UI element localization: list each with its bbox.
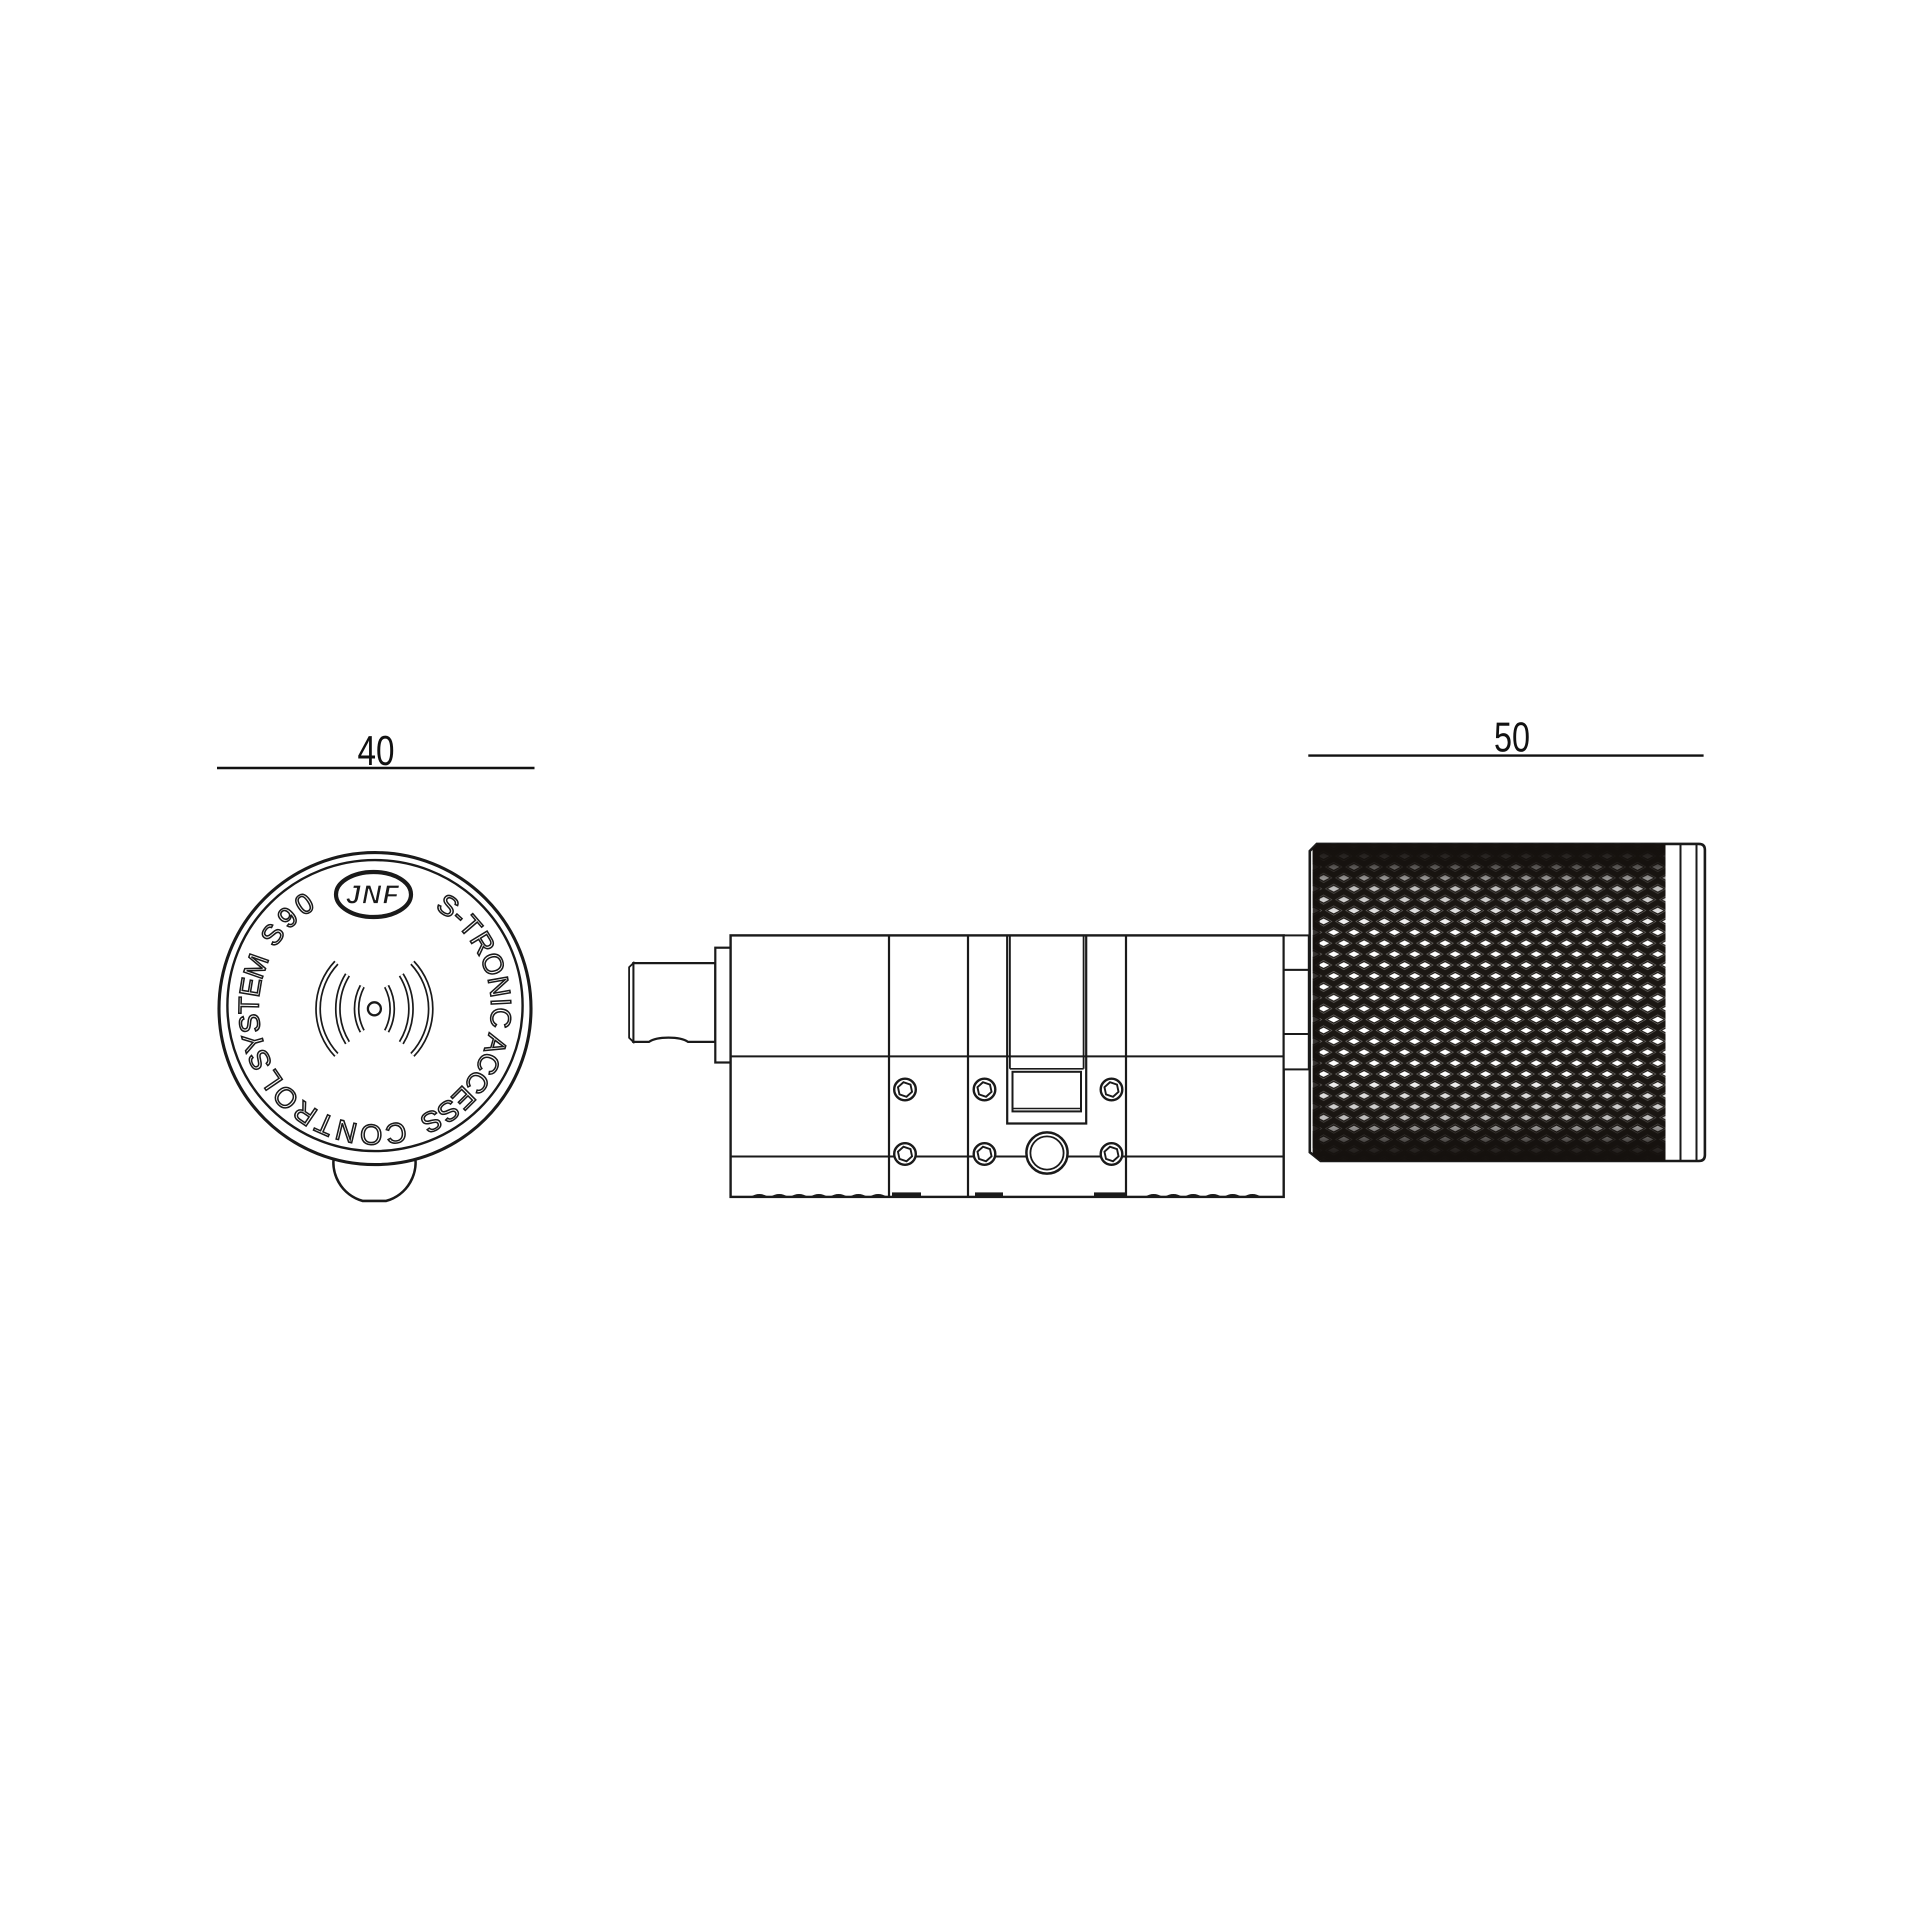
svg-text:JNF: JNF (346, 880, 401, 910)
svg-text:50: 50 (1494, 714, 1530, 761)
